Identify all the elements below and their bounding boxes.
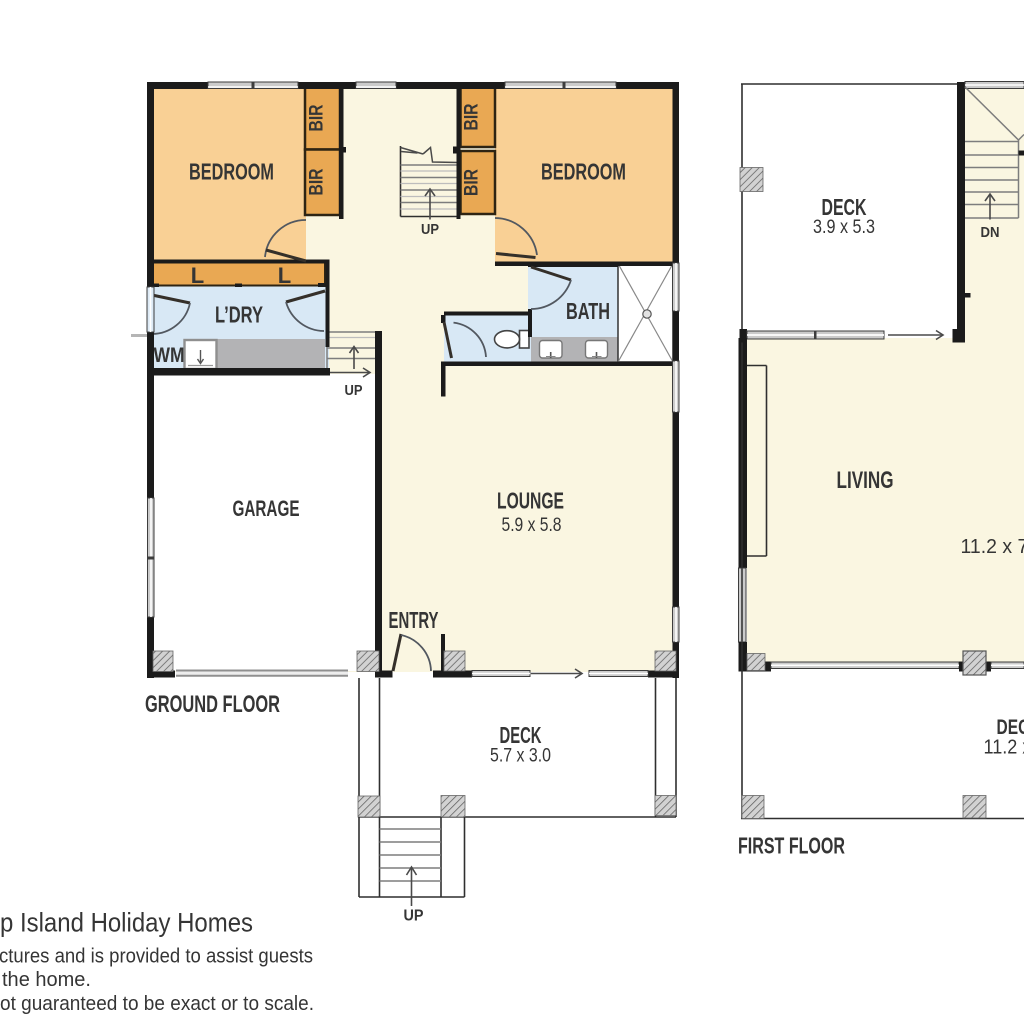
svg-text:BIR: BIR bbox=[461, 169, 483, 196]
svg-text:BATH: BATH bbox=[566, 298, 610, 324]
svg-text:ENTRY: ENTRY bbox=[389, 607, 439, 633]
svg-text:DN: DN bbox=[981, 225, 1000, 241]
svg-text:BEDROOM: BEDROOM bbox=[189, 159, 274, 185]
svg-text:BIR: BIR bbox=[306, 169, 328, 196]
svg-text:BIR: BIR bbox=[461, 104, 483, 131]
svg-text:11.2 x 3.0: 11.2 x 3.0 bbox=[984, 737, 1024, 759]
svg-text:p Island Holiday Homes: p Island Holiday Homes bbox=[0, 908, 253, 938]
svg-text:WM: WM bbox=[154, 344, 185, 367]
svg-text:L’DRY: L’DRY bbox=[215, 302, 263, 328]
svg-text:LOUNGE: LOUNGE bbox=[497, 488, 564, 514]
svg-text:ctures and is provided to assi: ctures and is provided to assist guests bbox=[0, 946, 313, 968]
svg-text:GROUND FLOOR: GROUND FLOOR bbox=[145, 691, 280, 718]
svg-text:the home.: the home. bbox=[2, 969, 91, 991]
svg-text:L: L bbox=[278, 263, 291, 288]
svg-text:ot guaranteed to be exact or t: ot guaranteed to be exact or to scale. bbox=[0, 993, 314, 1015]
svg-text:11.2 x 7.2: 11.2 x 7.2 bbox=[961, 536, 1024, 558]
svg-text:LIVING: LIVING bbox=[837, 467, 894, 494]
svg-text:UP: UP bbox=[345, 383, 363, 399]
svg-text:GARAGE: GARAGE bbox=[233, 496, 300, 521]
svg-text:L: L bbox=[191, 263, 204, 288]
svg-text:UP: UP bbox=[421, 221, 439, 238]
svg-text:3.9 x 5.3: 3.9 x 5.3 bbox=[813, 216, 875, 238]
svg-text:BEDROOM: BEDROOM bbox=[541, 159, 626, 185]
svg-text:UP: UP bbox=[404, 908, 424, 925]
svg-text:5.9 x 5.8: 5.9 x 5.8 bbox=[502, 514, 562, 536]
svg-text:BIR: BIR bbox=[306, 105, 328, 132]
svg-text:5.7 x 3.0: 5.7 x 3.0 bbox=[490, 745, 551, 767]
svg-text:FIRST FLOOR: FIRST FLOOR bbox=[738, 833, 845, 859]
